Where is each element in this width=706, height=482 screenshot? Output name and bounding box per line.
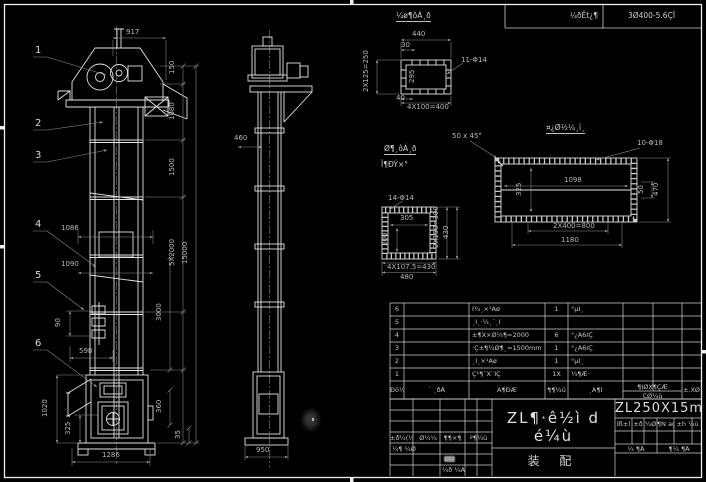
screen-speck [312,418,314,421]
detail-a-title: ¼ø¶ôÁ¸ð [396,12,431,22]
dim-b-2x150: 2X150=300 [433,206,440,248]
rev-header-mark: ±ð¼(¼¶ [390,435,413,442]
bom-header-code: ´ ¸ðÅ [404,387,469,394]
bom-row-name: ¸Î¸×¹Áø [472,358,543,365]
dim-c-1180: 1180 [561,237,579,244]
dim-front-150: 150 [169,61,176,74]
dim-side-950: 950 [256,447,269,454]
dim-c-1098: 1098 [564,177,582,184]
balloon-5: 5 [35,271,41,281]
info-scale: ±ð [632,421,644,428]
bom-row-name: ¸Î¸·¼¸´¸Î [472,319,543,326]
bom-row-no: 5 [390,319,404,326]
dim-b-300: 300 [382,233,389,246]
dim-front-35: 35 [175,430,182,439]
dim-front-5x2000: 5X2000 [169,239,176,266]
dim-front-1286: 1286 [102,452,120,459]
center-lines [117,26,270,468]
dim-b-4x107: 4X107.5=430 [387,264,436,271]
balloon-6: 6 [35,339,41,349]
bom-row-material: °¿Ä6ÍÇ [571,332,621,339]
dim-front-598: 598 [79,348,92,355]
dim-front-90: 90 [55,318,62,327]
signature-mark [444,456,455,462]
bom-header-no: Ðò¼Ñ [390,387,404,394]
detail-b-title-2: Î¶ÐÝ×° [381,161,408,169]
info-mark: Ïß±l [615,421,632,428]
dim-a-30: 30 [401,42,410,49]
detail-c-title: ¤¿Ø½¼¸ì¸ [546,124,585,134]
balloon-3: 3 [35,151,41,161]
side-view [245,37,312,445]
bom-row-material: °µÌ¸ [571,306,621,313]
sheet-spec-label: ¼ðÊ­t¿¶ [505,12,598,20]
sheet-spec-value: 3Ø400-5.6ÇÏ [604,12,699,20]
screen-smudge [303,410,319,430]
dim-a-40: 40 [396,95,405,102]
dim-b-305: 305 [400,215,413,222]
rev-row-check: ¼ð ¼Ä [442,467,472,474]
dim-b-480: 480 [400,274,413,281]
bom-row-qty: 1 [545,358,568,365]
bom-row-qty: 1 [545,306,568,313]
drawing-subtitle: 装 配 [492,452,615,469]
dimension-lines [57,38,668,462]
drawing-number: ZL250X15m [615,401,701,416]
bom-row-qty: 6 [545,332,568,339]
bom-row-qty: 1X [545,371,568,378]
dim-front-1086: 1086 [61,225,79,232]
dim-front-1080: 1080 [169,102,176,120]
bom-row-no: 1 [390,371,404,378]
bom-row-material: °µÌ¸ [571,358,621,365]
bom-row-material: °¿Ä6ÍÇ [571,345,621,352]
bom-row-qty: 1 [545,345,568,352]
dim-c-325: 325 [516,183,523,196]
dim-c-50: 50 [638,185,645,194]
bom-row-material: ¼¶Æ· [571,371,621,378]
dim-front-1500: 1500 [169,158,176,176]
dim-side-460: 460 [234,135,247,142]
dim-front-1090: 1090 [61,261,79,268]
dim-a-2x125: 2X125=250 [363,50,370,92]
bom-row-no: 3 [390,345,404,352]
rev-row-design: ¼¶ ¼Ø [392,446,432,453]
bom-header-name: Ã¶ÐÆ [469,387,545,394]
bom-row-name: Î¼¸×¹Áø [472,306,543,313]
dim-b-holes: 14-Φ14 [388,195,414,202]
bom-row-name: ·Ç±¶¼Ø¶¸=1500mm [472,345,543,352]
dim-front-325: 325 [65,422,72,435]
info-ratio: ±h ¼ù [674,421,701,428]
bom-row-no: 6 [390,306,404,313]
bom-row-name: Ç¹¶¯X¨ÎÇ [472,371,543,378]
info-weight: ¼Ø [644,421,657,428]
dim-c-470: 470 [653,183,660,196]
extension-lines [57,40,671,466]
bom-header-weight-top: ¶ÍØX¶ÇÆ [623,384,682,391]
dim-front-3000: 3000 [156,303,163,321]
dim-b-430: 430 [443,226,450,239]
rev-header-sign: ¶¶×¶ [440,435,465,442]
sheet-index: ¶¼ ¶Å [657,446,701,453]
bom-row-no: 2 [390,358,404,365]
dim-a-4x100: 4X100=400 [407,104,449,111]
dim-c-2x400: 2X400=800 [553,223,595,230]
dim-front-917: 917 [126,29,139,36]
bom-header-qty: ¶¶¼ü [545,387,568,394]
cad-drawing-sheet: ¼ðÊ­t¿¶ 3Ø400-5.6ÇÏ 1 2 3 4 5 6 917 150 … [0,0,706,482]
balloon-4: 4 [35,220,41,230]
detail-b-title-1: Ø¶¸ôÁ¸ð [384,145,416,155]
balloon-1: 1 [35,46,41,56]
bom-row-no: 4 [390,332,404,339]
dim-front-1020: 1020 [42,399,49,417]
rev-header-count: ¸Ø¼¼ [413,435,440,442]
dim-a-295: 295 [409,70,416,83]
dim-a-holes: 11-Φ14 [461,57,487,64]
chamfer-note: 50 x 45° [452,133,482,140]
bom-header-material: ¸Ã¶Ï [568,387,623,394]
dim-front-360: 360 [156,400,163,413]
dim-a-440: 440 [412,31,425,38]
dim-front-15000: 15000 [182,242,189,264]
sheet-count: ¼ ¶Å [615,446,657,453]
bom-header-remark: ±,XØ [682,387,701,394]
rev-header-date: º¶¼ü [465,435,492,442]
balloon-2: 2 [35,119,41,129]
info-mass: ¶Ñ ag [657,421,674,428]
bom-row-name: ±¶X×Ø¼¶=2000 [472,332,543,339]
drawing-title: ZL¶·ê½ì d é¼ù [492,409,615,445]
bom-header-weight-bottom: ÇØ¼ù [623,393,682,400]
dim-c-holes: 10-Φ18 [637,140,663,147]
